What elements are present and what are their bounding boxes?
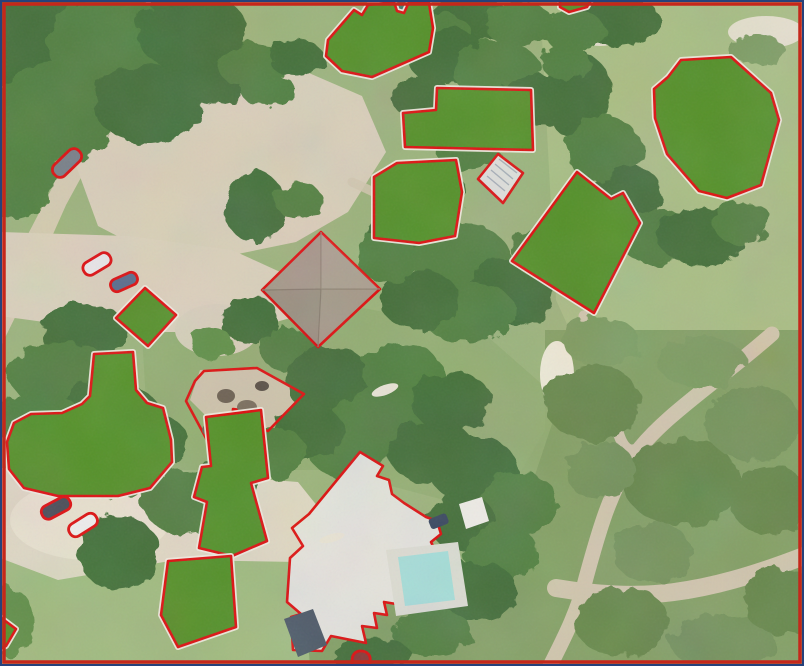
aerial-annotation-image bbox=[0, 0, 804, 666]
fine-grain bbox=[0, 0, 804, 666]
photo-grain-overlay bbox=[0, 0, 804, 666]
orthophoto-canvas bbox=[0, 0, 804, 666]
